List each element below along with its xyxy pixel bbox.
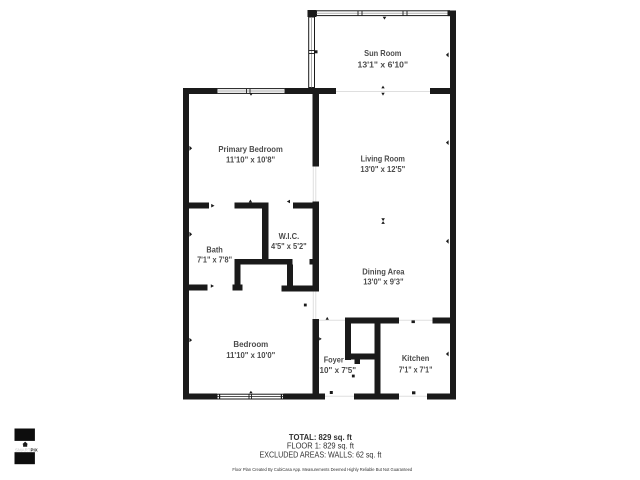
- svg-text:13'0" x 12'5": 13'0" x 12'5": [360, 165, 405, 174]
- svg-text:Bath: Bath: [206, 246, 222, 255]
- svg-text:EXCLUDED AREAS: WALLS: 62 sq.: EXCLUDED AREAS: WALLS: 62 sq. ft: [259, 449, 381, 459]
- svg-text:Dining Area: Dining Area: [362, 267, 405, 276]
- svg-text:3'10" x 7'5": 3'10" x 7'5": [313, 366, 356, 375]
- svg-text:7'1" x 7'8": 7'1" x 7'8": [197, 256, 232, 265]
- svg-text:11'10" x 10'0": 11'10" x 10'0": [226, 351, 275, 360]
- svg-text:11'10" x 10'8": 11'10" x 10'8": [226, 156, 275, 165]
- svg-text:7'1" x 7'1": 7'1" x 7'1": [399, 365, 433, 374]
- svg-text:Living Room: Living Room: [361, 155, 405, 164]
- svg-text:Kitchen: Kitchen: [402, 354, 430, 363]
- svg-text:Sun Room: Sun Room: [364, 49, 401, 58]
- svg-text:W.I.C.: W.I.C.: [279, 232, 300, 241]
- svg-text:Bedroom: Bedroom: [233, 340, 268, 349]
- svg-text:4'5" x 5'2": 4'5" x 5'2": [271, 242, 307, 251]
- svg-text:Primary Bedroom: Primary Bedroom: [218, 145, 282, 154]
- svg-text:13'1" x 6'10": 13'1" x 6'10": [358, 60, 409, 69]
- svg-text:Foyer: Foyer: [324, 355, 345, 364]
- svg-text:Floor Plan Created By CubiCasa: Floor Plan Created By CubiCasa App. Meas…: [232, 467, 412, 472]
- svg-text:13'0" x 9'3": 13'0" x 9'3": [363, 277, 404, 286]
- svg-text:SMARTPIX: SMARTPIX: [15, 447, 38, 452]
